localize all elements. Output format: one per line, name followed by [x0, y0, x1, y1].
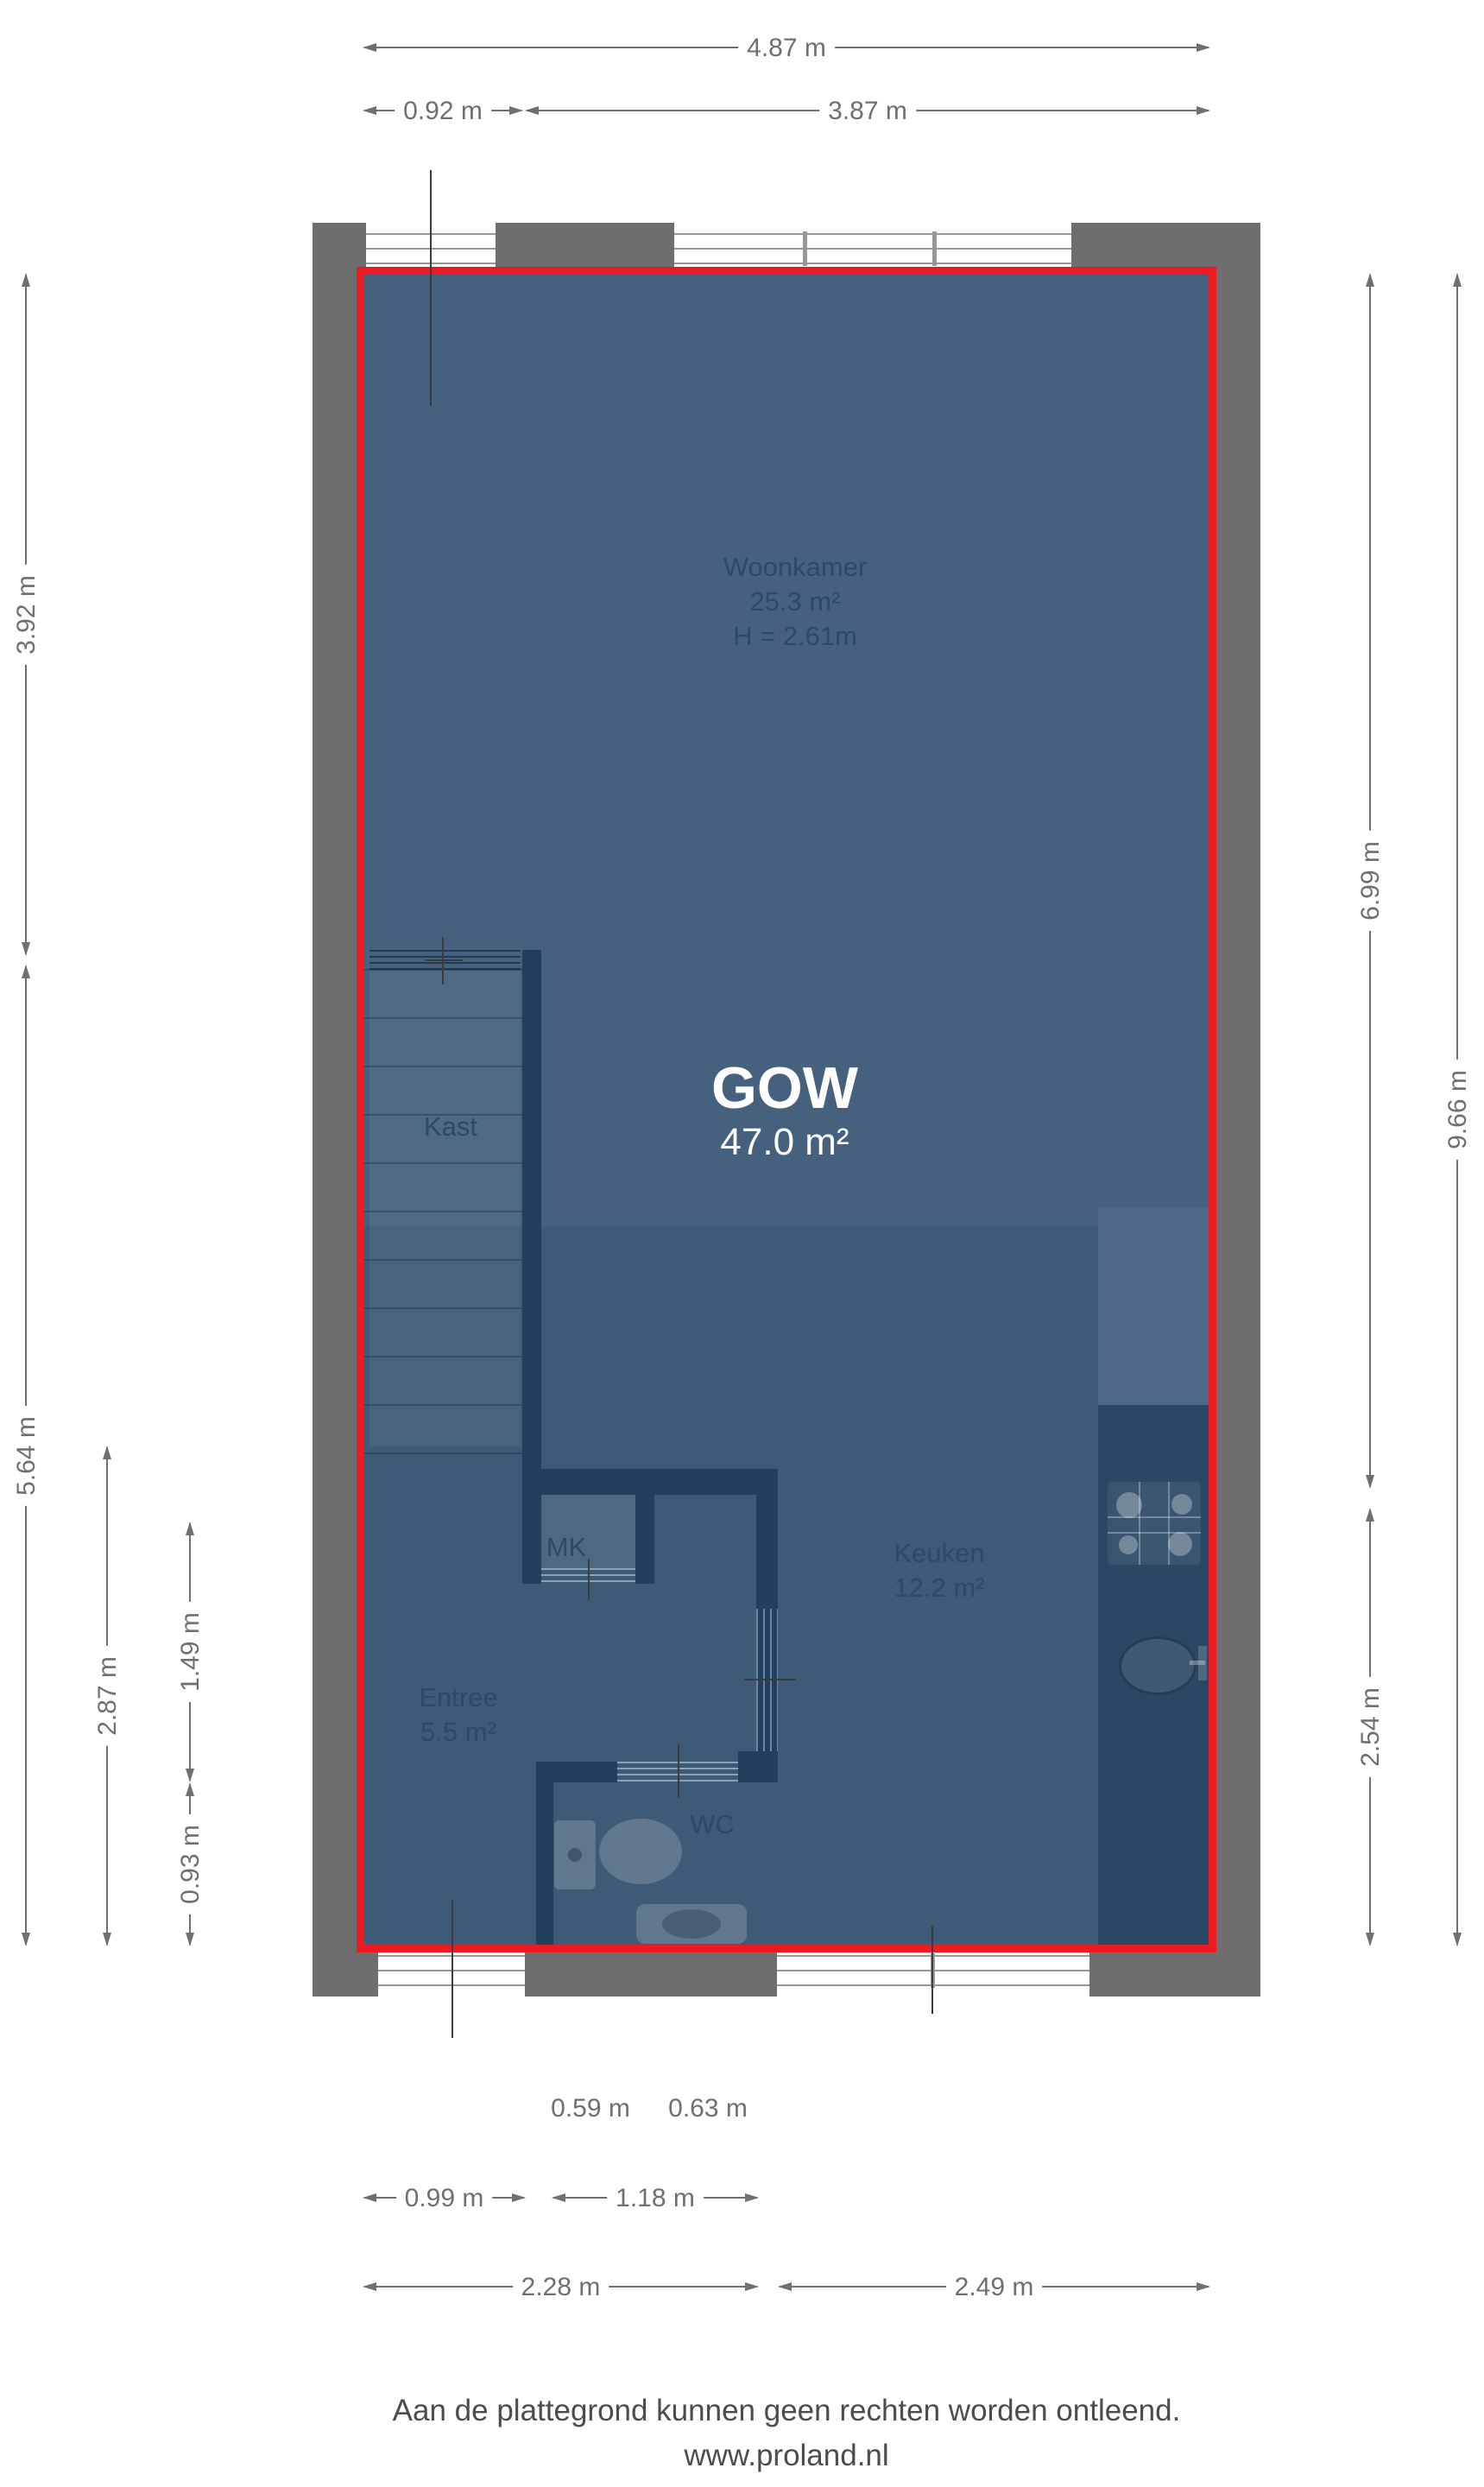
- dimension-left-392: 3.92 m: [25, 275, 27, 954]
- dimension-top-window-right: 3.87 m: [527, 110, 1209, 111]
- room-label-entree: Entree 5.5 m²: [419, 1680, 497, 1750]
- centerline-mark: [430, 170, 432, 406]
- dimension-value: 3.92 m: [12, 565, 41, 665]
- centerline-mark: [678, 1744, 679, 1798]
- dimension-left-093: 0.93 m: [189, 1784, 191, 1945]
- room-label-keuken: Keuken 12.2 m²: [894, 1536, 984, 1605]
- disclaimer-text: Aan de plattegrond kunnen geen rechten w…: [393, 2394, 1181, 2428]
- dimension-top-window-left: 0.92 m: [364, 110, 521, 111]
- dimension-right-254: 2.54 m: [1369, 1509, 1371, 1945]
- dimension-value: 9.66 m: [1443, 1060, 1473, 1160]
- window-post: [932, 231, 937, 266]
- dimension-bottom-099: 0.99 m: [364, 2197, 524, 2199]
- window-bottom-right: [777, 1945, 1089, 1997]
- dimension-value: 0.93 m: [176, 1814, 205, 1914]
- dimension-value: 1.18 m: [607, 2184, 704, 2213]
- dimension-value: 4.87 m: [738, 34, 835, 63]
- centerline-mark: [588, 1559, 590, 1600]
- centerline-mark: [744, 1679, 796, 1680]
- room-area: 47.0 m²: [711, 1119, 858, 1166]
- room-name: Kast: [424, 1110, 477, 1144]
- room-label-kast: Kast: [424, 1110, 477, 1144]
- dimension-value: 0.92 m: [395, 97, 491, 126]
- dimension-left-149: 1.49 m: [189, 1523, 191, 1781]
- room-name: Entree: [419, 1680, 497, 1715]
- dimension-value: 2.28 m: [513, 2273, 609, 2302]
- dimension-value: 1.49 m: [176, 1602, 205, 1702]
- room-name: GOW: [711, 1057, 858, 1119]
- room-area: 5.5 m²: [419, 1715, 497, 1750]
- room-name: WC: [690, 1807, 735, 1842]
- room-label-gow: GOW 47.0 m²: [711, 1057, 858, 1166]
- dimension-right-966: 9.66 m: [1456, 275, 1458, 1945]
- dimension-bottom-249: 2.49 m: [780, 2286, 1209, 2288]
- dimension-value: 2.49 m: [946, 2273, 1043, 2302]
- dimension-bottom-118: 1.18 m: [553, 2197, 757, 2199]
- dimension-bottom-063: 0.63 m: [668, 2094, 748, 2123]
- dimension-top-total: 4.87 m: [364, 47, 1209, 48]
- dimension-left-287: 2.87 m: [106, 1447, 108, 1945]
- dimension-value: 0.99 m: [396, 2184, 493, 2213]
- dimension-value: 2.87 m: [93, 1646, 123, 1746]
- room-area: 25.3 m²: [723, 585, 868, 619]
- dimension-value: 3.87 m: [819, 97, 916, 126]
- window-post: [803, 231, 807, 266]
- room-name: Keuken: [894, 1536, 984, 1571]
- room-label-wc: WC: [690, 1807, 735, 1842]
- room-area: 12.2 m²: [894, 1571, 984, 1605]
- dimension-value: 6.99 m: [1356, 831, 1386, 931]
- centerline-mark: [425, 959, 463, 961]
- dimension-value: 5.64 m: [12, 1406, 41, 1506]
- centerline-mark: [931, 1926, 933, 2014]
- website-text: www.proland.nl: [684, 2439, 888, 2473]
- room-height: H = 2.61m: [723, 619, 868, 654]
- centerline-mark: [452, 1900, 453, 2038]
- dimension-right-699: 6.99 m: [1369, 275, 1371, 1487]
- dimension-left-564: 5.64 m: [25, 966, 27, 1945]
- room-label-woonkamer: Woonkamer 25.3 m² H = 2.61m: [723, 550, 868, 654]
- dimension-bottom-228: 2.28 m: [364, 2286, 757, 2288]
- dimension-bottom-059: 0.59 m: [551, 2094, 630, 2123]
- floorplan-page: Woonkamer 25.3 m² H = 2.61m GOW 47.0 m² …: [0, 0, 1484, 2487]
- room-label-mk: MK: [546, 1530, 587, 1565]
- dimension-value: 2.54 m: [1356, 1677, 1386, 1777]
- room-name: Woonkamer: [723, 550, 868, 585]
- room-name: MK: [546, 1530, 587, 1565]
